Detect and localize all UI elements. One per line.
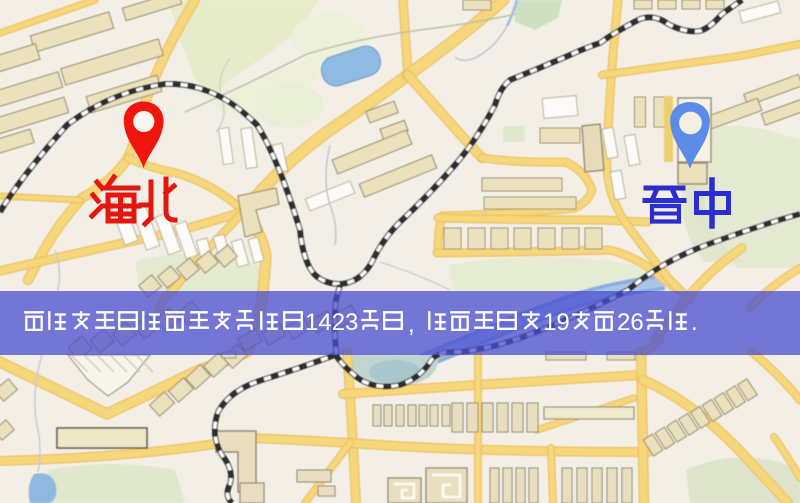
svg-text:.: . bbox=[691, 309, 698, 336]
svg-text:26: 26 bbox=[617, 309, 644, 336]
svg-text:19: 19 bbox=[543, 309, 570, 336]
svg-text:1423: 1423 bbox=[305, 309, 358, 336]
svg-text:,: , bbox=[408, 311, 415, 338]
